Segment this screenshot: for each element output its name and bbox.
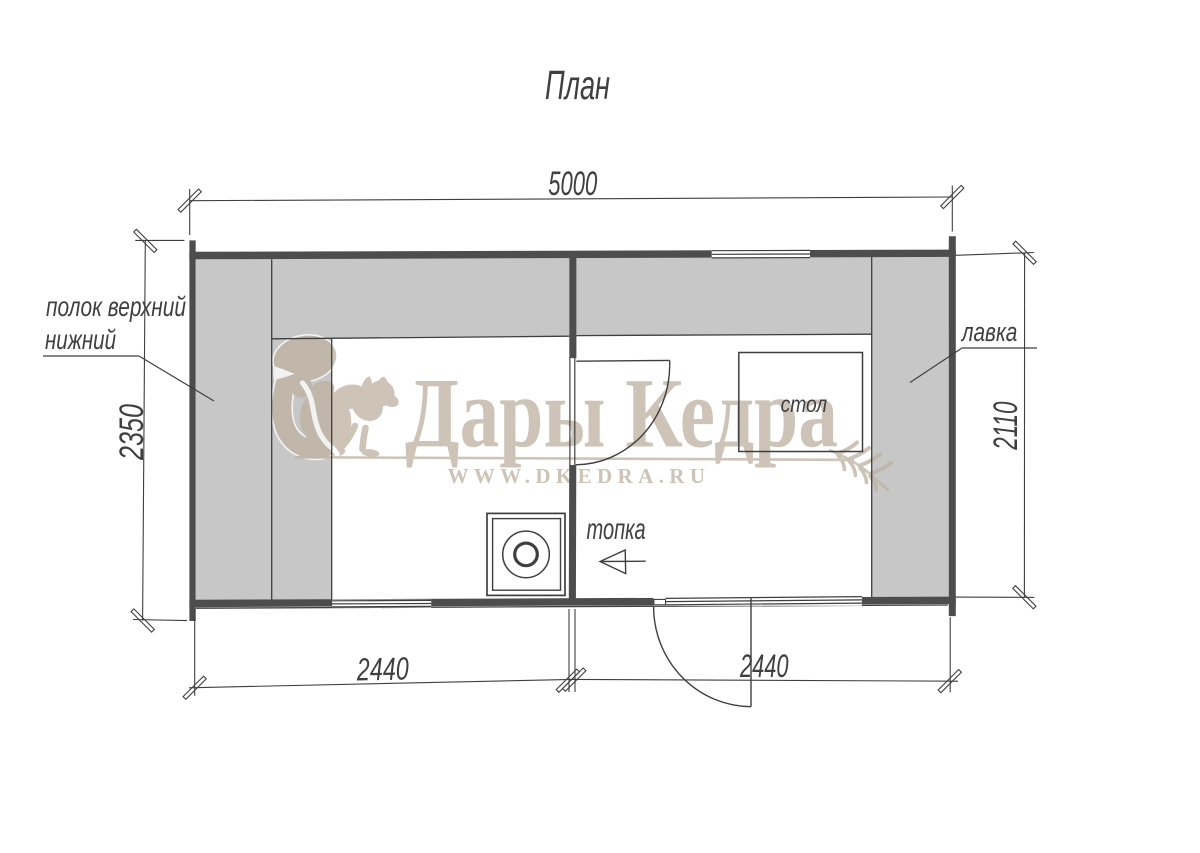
svg-text:топка: топка bbox=[587, 513, 646, 546]
svg-text:лавка: лавка bbox=[960, 317, 1017, 347]
svg-text:2110: 2110 bbox=[987, 401, 1025, 450]
svg-text:2350: 2350 bbox=[113, 404, 151, 461]
svg-text:нижний: нижний bbox=[45, 324, 116, 355]
svg-text:2440: 2440 bbox=[356, 650, 410, 687]
svg-text:План: План bbox=[545, 62, 610, 108]
svg-text:стол: стол bbox=[781, 391, 828, 417]
svg-text:2440: 2440 bbox=[739, 648, 788, 684]
svg-text:полок верхний: полок верхний bbox=[46, 291, 186, 322]
svg-text:5000: 5000 bbox=[548, 165, 597, 203]
